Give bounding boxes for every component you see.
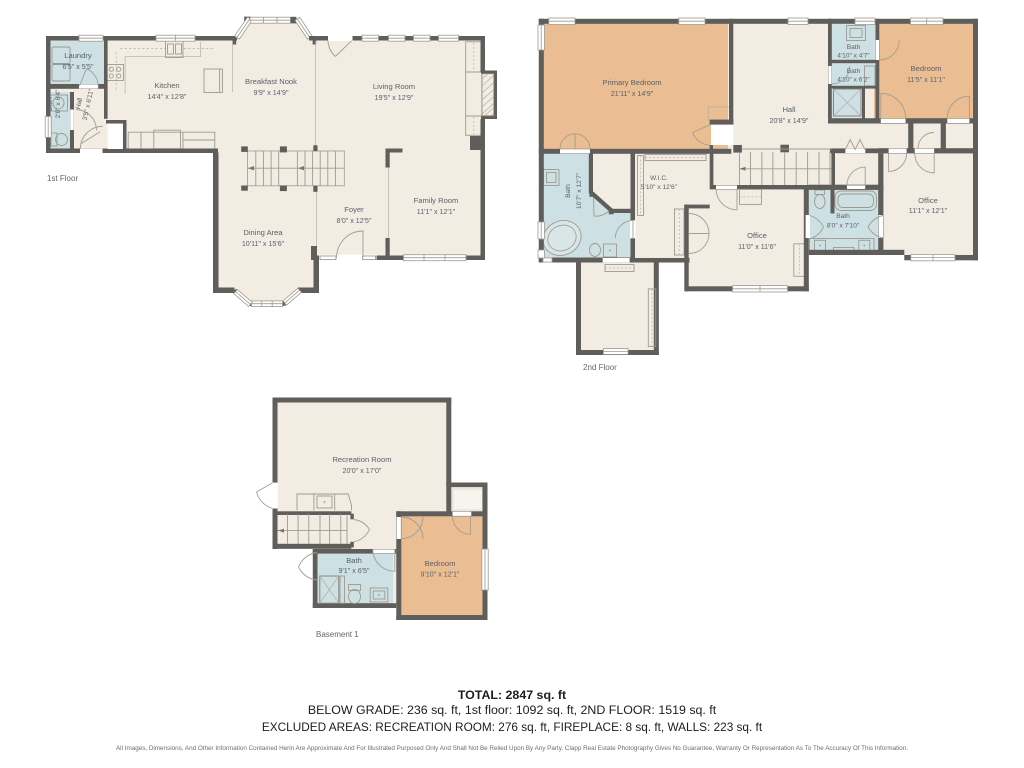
svg-text:Foyer: Foyer (344, 205, 364, 214)
svg-text:2'8" x 6'4": 2'8" x 6'4" (55, 89, 62, 118)
svg-text:Bath: Bath (565, 184, 572, 198)
svg-text:11'1" x 12'1": 11'1" x 12'1" (417, 208, 456, 216)
svg-text:Bath: Bath (847, 44, 861, 51)
svg-text:9'1" x 6'5": 9'1" x 6'5" (338, 567, 369, 575)
svg-text:Bedroom: Bedroom (911, 64, 942, 73)
svg-text:Breakfast Nook: Breakfast Nook (245, 77, 297, 86)
svg-text:Bedroom: Bedroom (425, 559, 456, 568)
svg-text:Dining Area: Dining Area (243, 228, 283, 237)
svg-text:5'10" x 12'6": 5'10" x 12'6" (641, 184, 678, 191)
svg-text:Bath: Bath (346, 556, 362, 565)
svg-text:All Images, Dimensions, And Ot: All Images, Dimensions, And Other Inform… (116, 745, 908, 752)
svg-text:4'10" x 4'7": 4'10" x 4'7" (837, 53, 870, 60)
svg-text:Living Room: Living Room (373, 82, 415, 91)
svg-text:9'9" x 14'9": 9'9" x 14'9" (254, 89, 289, 97)
svg-text:19'5" x 12'9": 19'5" x 12'9" (375, 94, 414, 102)
svg-text:Bath: Bath (47, 97, 54, 111)
svg-text:11'5" x 11'1": 11'5" x 11'1" (907, 76, 945, 84)
svg-text:9'10" x 12'1": 9'10" x 12'1" (421, 571, 460, 579)
svg-text:EXCLUDED AREAS: RECREATION ROO: EXCLUDED AREAS: RECREATION ROOM: 276 sq.… (262, 720, 763, 734)
svg-text:Family Room: Family Room (414, 196, 459, 205)
svg-text:20'0" x 17'0": 20'0" x 17'0" (343, 467, 382, 475)
svg-text:14'4" x 12'8": 14'4" x 12'8" (148, 93, 187, 101)
svg-text:W.I.C.: W.I.C. (650, 175, 668, 182)
svg-text:TOTAL: 2847 sq. ft: TOTAL: 2847 sq. ft (458, 688, 566, 702)
svg-text:10'7" x 12'7": 10'7" x 12'7" (576, 172, 583, 209)
svg-text:Office: Office (747, 231, 767, 240)
svg-text:11'1" x 12'1": 11'1" x 12'1" (909, 207, 948, 215)
svg-text:6'5" x 5'5": 6'5" x 5'5" (62, 63, 93, 71)
svg-text:Bath: Bath (847, 68, 861, 75)
svg-text:Basement 1: Basement 1 (316, 630, 359, 639)
svg-text:Recreation Room: Recreation Room (332, 455, 391, 464)
svg-text:2nd Floor: 2nd Floor (583, 363, 617, 372)
svg-text:Primary Bedroom: Primary Bedroom (602, 78, 661, 87)
svg-text:21'11" x 14'9": 21'11" x 14'9" (611, 90, 654, 98)
svg-text:BELOW GRADE: 236 sq. ft, 1st f: BELOW GRADE: 236 sq. ft, 1st floor: 1092… (308, 703, 717, 717)
svg-text:Hall: Hall (782, 105, 795, 114)
svg-text:1st Floor: 1st Floor (47, 174, 78, 183)
svg-text:Office: Office (918, 196, 938, 205)
svg-text:4'10" x 6'2": 4'10" x 6'2" (837, 77, 870, 84)
svg-text:Bath: Bath (836, 213, 850, 220)
svg-text:Kitchen: Kitchen (154, 81, 179, 90)
svg-text:10'11" x 15'6": 10'11" x 15'6" (242, 240, 285, 248)
svg-text:8'0" x 12'5": 8'0" x 12'5" (337, 217, 372, 225)
svg-text:20'8" x 14'9": 20'8" x 14'9" (770, 117, 809, 125)
svg-text:11'0" x 11'6": 11'0" x 11'6" (738, 243, 776, 251)
svg-text:8'0" x 7'10": 8'0" x 7'10" (827, 223, 860, 230)
svg-text:Laundry: Laundry (64, 51, 92, 60)
